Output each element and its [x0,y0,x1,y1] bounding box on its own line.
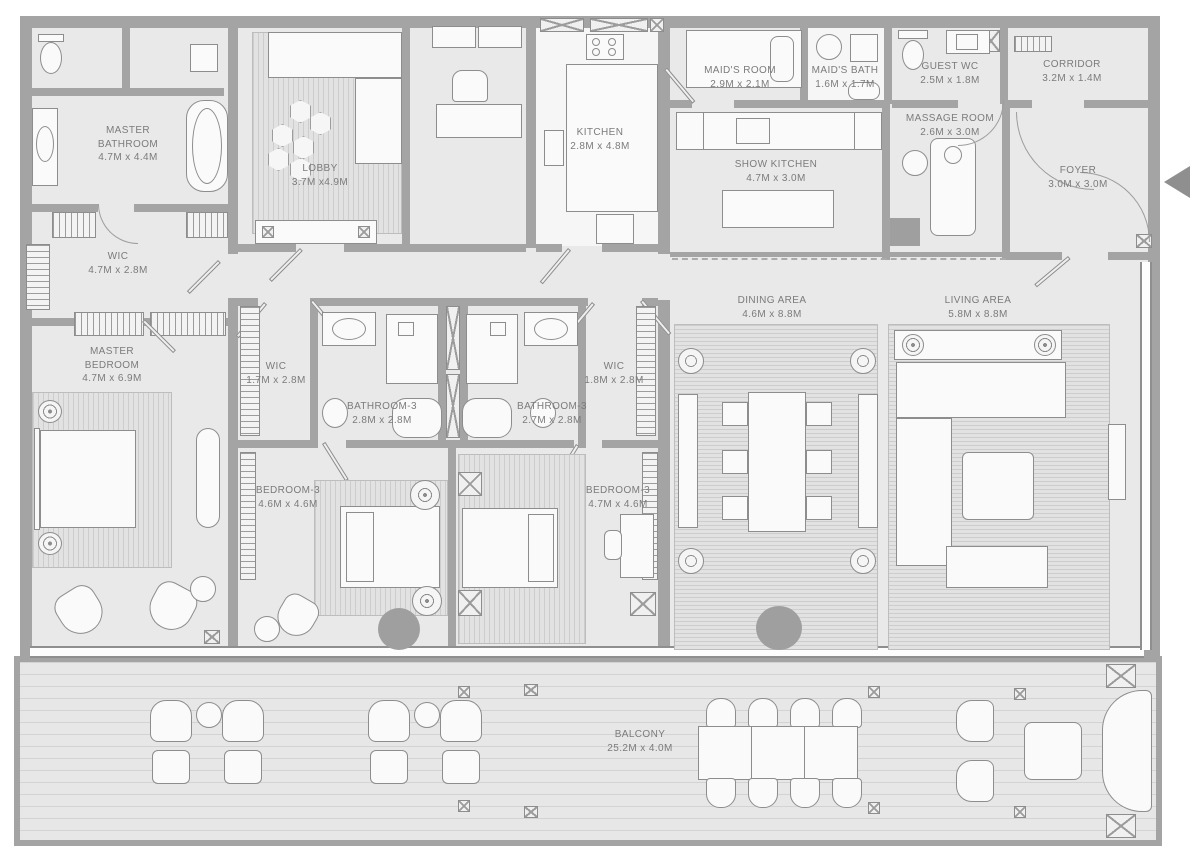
top-cabinet [590,18,648,32]
speaker [1034,334,1056,356]
downlight [678,348,704,374]
speaker [458,472,482,496]
pouf [378,608,420,650]
armchair [440,700,482,742]
room-label-bathroom3-left: BATHROOM-32.8M x 2.8M [339,400,425,427]
speaker [38,532,62,555]
pillow [528,514,554,582]
bench [196,428,220,528]
speaker [38,400,62,423]
counter [676,112,882,150]
armchair [150,700,192,742]
room-label-master-bathroom: MASTER BATHROOM4.7M x 4.4M [85,124,171,165]
room-label-balcony: BALCONY25.2M x 4.0M [607,728,672,755]
east-window-wall [1140,262,1152,650]
room-label-bedroom3-right: BEDROOM-34.7M x 4.6M [586,484,650,511]
top-cabinet [650,18,664,32]
side-table [254,616,280,642]
corridor-closet [1014,36,1052,52]
stool [902,150,928,176]
sofa [355,78,402,164]
room-label-foyer: FOYER3.0M x 3.0M [1048,164,1107,191]
speaker [458,590,482,616]
room-label-dining-area: DINING AREA4.6M x 8.8M [738,294,807,321]
sink [36,126,54,162]
room-label-wic-right: WIC1.8M x 2.8M [584,360,643,387]
room-label-wic-master: WIC4.7M x 2.8M [88,250,147,277]
shaft [446,374,460,438]
sofa [896,418,952,566]
speaker [412,586,442,616]
sink [736,118,770,144]
chair [790,698,820,728]
sink [956,34,978,50]
chair [832,698,862,728]
sideboard [678,394,698,528]
shower [850,34,878,62]
room-label-bathroom3-right: BATHROOM-32.7M x 2.8M [509,400,595,427]
room-label-corridor: CORRIDOR3.2M x 1.4M [1042,58,1101,85]
room-label-living-area: LIVING AREA5.8M x 8.8M [945,294,1012,321]
ottoman [224,750,262,784]
shelf [432,26,476,48]
room-label-maids-room: MAID'S ROOM2.9M x 2.1M [704,64,776,91]
island [722,190,834,228]
shaft [446,306,460,370]
bathtub [462,398,512,438]
speaker [410,480,440,510]
armchair [368,700,410,742]
sofa [896,362,1066,418]
shelf [478,26,522,48]
downlight [850,348,876,374]
stove [586,34,624,60]
appliance [596,214,634,244]
armchair [222,700,264,742]
floor-outlet [204,630,220,644]
side-table [190,576,216,602]
pillow [346,512,374,582]
coffee-table [962,452,1034,520]
show-kitchen-opening [672,258,1006,260]
desk [620,514,654,578]
side-table [196,702,222,728]
bench [946,546,1048,588]
entry-arrow-icon [1164,166,1190,198]
floor-plan: MASTER BATHROOM4.7M x 4.4M WIC4.7M x 2.8… [0,0,1192,852]
outdoor-dining-table [698,726,858,780]
headrest [944,146,962,164]
armchair [956,700,994,742]
chair [806,496,832,520]
bedroom3-left-wardrobe [240,452,256,580]
armchair [956,760,994,802]
side-table [414,702,440,728]
top-cabinet [540,18,584,32]
downlight [850,548,876,574]
chair [748,698,778,728]
room-label-maids-bath: MAID'S BATH1.6M x 1.7M [812,64,879,91]
chair [706,778,736,808]
chair [790,778,820,808]
sideboard [858,394,878,528]
chair [806,450,832,474]
fridge [544,130,564,166]
ottoman [370,750,408,784]
console [1108,424,1126,500]
bed [40,430,136,528]
dining-table [748,392,806,532]
sink [534,318,568,340]
planter [1106,664,1136,688]
sink [332,318,366,340]
chair [806,402,832,426]
shower-head [190,44,218,72]
chair [722,402,748,426]
chair [722,450,748,474]
chair [604,530,622,560]
chair [452,70,488,102]
speaker [902,334,924,356]
room-label-wic-left: WIC1.7M x 2.8M [246,360,305,387]
room-label-bedroom3-left: BEDROOM-34.6M x 4.6M [256,484,320,511]
chair [832,778,862,808]
sink [816,34,842,60]
ottoman [442,750,480,784]
chair [722,496,748,520]
planter [1106,814,1136,838]
planter [630,592,656,616]
sofa [268,32,402,78]
desk [436,104,522,138]
chair [706,698,736,728]
curved-sofa [1102,690,1152,812]
ottoman [152,750,190,784]
downlight [678,548,704,574]
room-label-show-kitchen: SHOW KITCHEN4.7M x 3.0M [735,158,818,185]
room-label-lobby: LOBBY3.7M x4.9M [292,162,348,189]
room-label-kitchen: KITCHEN2.8M x 4.8M [570,126,629,153]
room-label-guest-wc: GUEST WC2.5M x 1.8M [920,60,979,87]
shaft-block [890,218,920,246]
room-label-master-bedroom: MASTER BEDROOM4.7M x 6.9M [69,345,155,386]
planter [756,606,802,650]
room-label-massage-room: MASSAGE ROOM2.6M x 3.0M [906,112,994,139]
coffee-table [1024,722,1082,780]
chair [748,778,778,808]
